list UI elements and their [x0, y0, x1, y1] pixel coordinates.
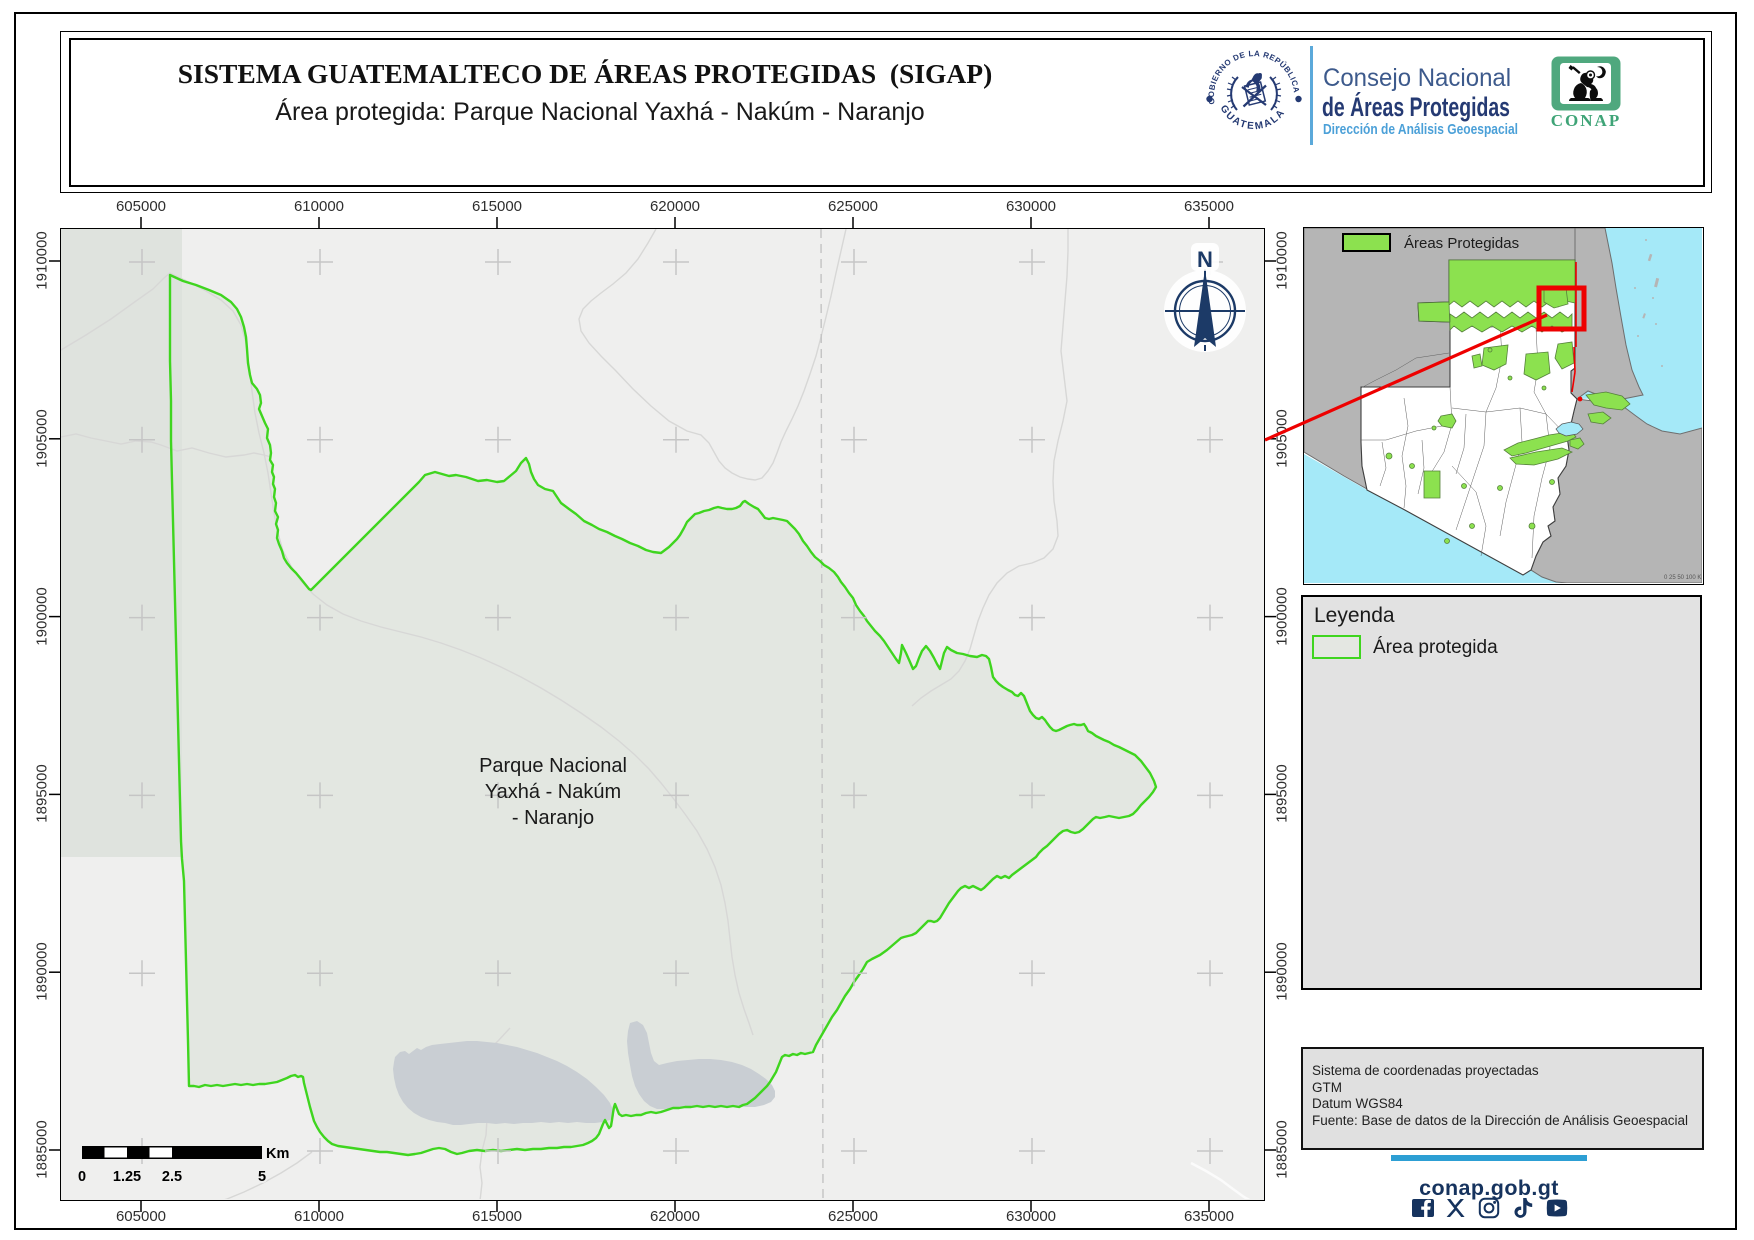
svg-text:0 25 50 100 Km: 0 25 50 100 Km	[1664, 575, 1702, 581]
svg-text:Áreas Protegidas: Áreas Protegidas	[1404, 235, 1519, 252]
svg-text:N: N	[1197, 247, 1213, 272]
svg-text:GUATEMALA: GUATEMALA	[1218, 103, 1288, 132]
svg-text:2.5: 2.5	[162, 1169, 182, 1185]
svg-text:1.25: 1.25	[113, 1169, 141, 1185]
svg-text:Km: Km	[266, 1146, 289, 1162]
svg-text:5: 5	[258, 1169, 266, 1185]
svg-text:0: 0	[78, 1169, 86, 1185]
svg-text:CONAP: CONAP	[1551, 111, 1621, 130]
